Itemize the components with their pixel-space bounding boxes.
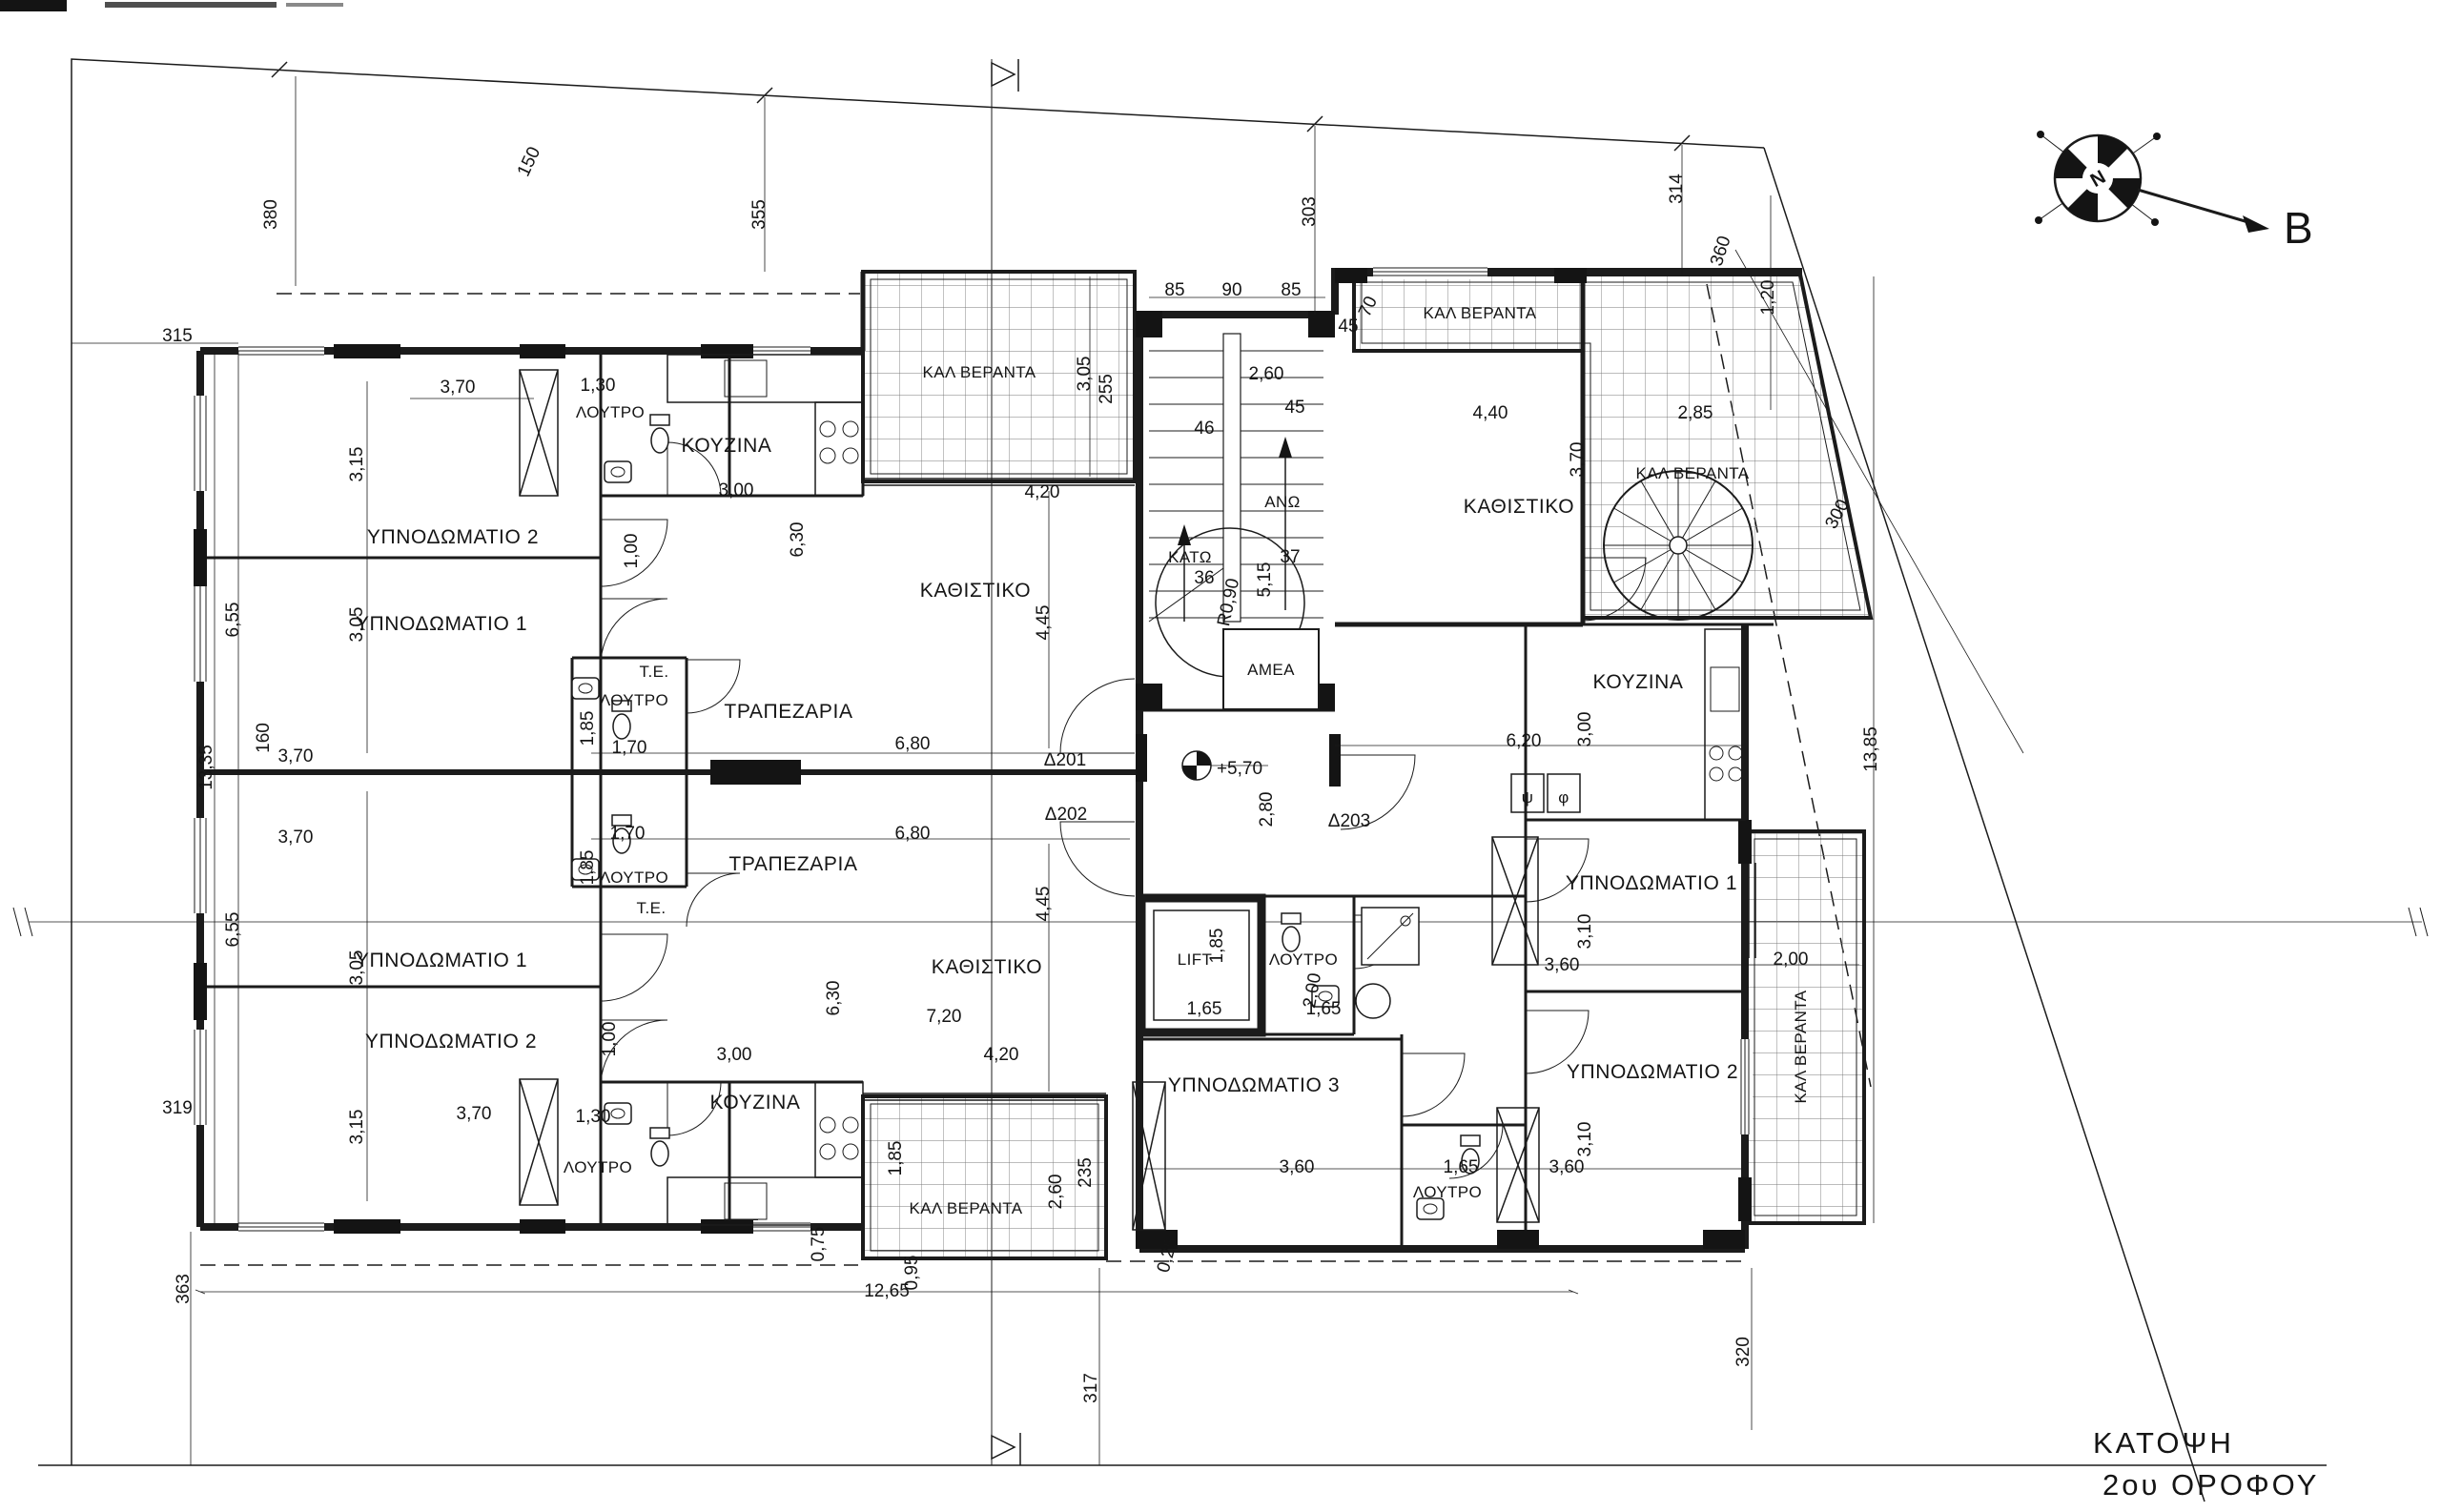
room-label-living-r: ΚΑΘΙΣΤΙΚΟ — [1464, 496, 1574, 518]
room-label-bed2-tl: ΥΠΝΟΔΩΜΑΤΙΟ 2 — [367, 526, 539, 548]
dim-317: 317 — [1081, 1373, 1101, 1403]
dim-1-65-a: 1,65 — [1444, 1157, 1479, 1177]
dim-7-20: 7,20 — [927, 1007, 962, 1027]
dim-6-55-b: 6,55 — [223, 912, 243, 948]
room-label-veranda-right: ΚΑΛ ΒΕΡΑΝΤΑ — [1792, 990, 1810, 1103]
window-bottom-1 — [238, 1220, 324, 1235]
window-top-2 — [753, 344, 810, 358]
dim-2-85: 2,85 — [1678, 403, 1713, 423]
dim-3-05-a: 3,05 — [347, 607, 367, 643]
window-left-4 — [193, 1030, 208, 1125]
dim-3-15-a: 3,15 — [347, 447, 367, 482]
dim-3-00-r: 3,00 — [1575, 712, 1595, 747]
dim-255: 255 — [1097, 374, 1117, 404]
dim-1-85-b: 1,85 — [578, 850, 598, 886]
floorplan-drawing: N B 380 150 355 303 314 360 1,20 315 6,5… — [0, 0, 2441, 1512]
dim-3-00-b: 3,00 — [717, 1045, 752, 1065]
window-right-1 — [1738, 1039, 1753, 1134]
window-top-1 — [238, 344, 324, 358]
room-label-veranda-bottom: ΚΑΛ ΒΕΡΑΝΤΑ — [909, 1199, 1022, 1217]
room-label-living-bl: ΚΑΘΙΣΤΙΚΟ — [932, 956, 1042, 978]
dim-45-b: 45 — [1284, 398, 1304, 418]
room-label-veranda-tr1: ΚΑΛ ΒΕΡΑΝΤΑ — [1423, 304, 1536, 322]
verandas — [863, 272, 1871, 1258]
room-label-bed2-r: ΥΠΝΟΔΩΜΑΤΙΟ 2 — [1567, 1061, 1738, 1083]
room-label-veranda-top: ΚΑΛ ΒΕΡΑΝΤΑ — [922, 363, 1036, 381]
window-left-1 — [193, 396, 208, 491]
dim-303: 303 — [1300, 196, 1320, 227]
room-label-living-tl: ΚΑΘΙΣΤΙΚΟ — [920, 580, 1031, 602]
dim-45-a: 45 — [1338, 317, 1358, 337]
dim-1-85-c: 1,85 — [1207, 929, 1227, 964]
dim-355: 355 — [749, 199, 769, 230]
dim-3-60-b: 3,60 — [1549, 1157, 1585, 1177]
dim-3-70-d: 3,70 — [457, 1104, 492, 1124]
dim-1-70-a: 1,70 — [612, 738, 647, 758]
dim-315: 315 — [162, 326, 193, 346]
dim-1-00-b: 1,00 — [600, 1022, 620, 1057]
room-label-dining-up: ΤΡΑΠΕΖΑΡΙΑ — [724, 701, 852, 723]
door-label-d202: Δ202 — [1045, 805, 1087, 825]
dim-6-80-b: 6,80 — [895, 824, 931, 844]
dim-1-30-a: 1,30 — [581, 376, 616, 396]
room-label-bed1-tl: ΥΠΝΟΔΩΜΑΤΙΟ 1 — [356, 613, 527, 635]
dim-3-10-a: 3,10 — [1575, 914, 1595, 950]
window-bottom-2 — [753, 1220, 810, 1235]
room-label-te-lower: Τ.Ε. — [637, 899, 667, 917]
dim-1-30-b: 1,30 — [576, 1107, 611, 1127]
dim-6-20: 6,20 — [1507, 731, 1542, 751]
room-label-bed3: ΥΠΝΟΔΩΜΑΤΙΟ 3 — [1168, 1074, 1340, 1096]
door-label-d203: Δ203 — [1328, 811, 1370, 831]
dim-85-a: 85 — [1164, 280, 1184, 300]
dim-2-00-a: 2,00 — [1774, 950, 1809, 970]
room-label-bed1-bl: ΥΠΝΟΔΩΜΑΤΙΟ 1 — [356, 950, 527, 971]
dim-46: 46 — [1194, 419, 1214, 439]
room-label-veranda-tr2: ΚΑΛ ΒΕΡΑΝΤΑ — [1635, 464, 1749, 482]
staircase — [1149, 334, 1323, 709]
dim-4-45-b: 4,45 — [1034, 887, 1054, 922]
window-left-2 — [193, 586, 208, 682]
dim-85-b: 85 — [1281, 280, 1301, 300]
room-label-bath-r: ΛΟΥΤΡΟ — [1269, 950, 1338, 969]
dim-6-55-a: 6,55 — [223, 603, 243, 638]
dim-6-30-a: 6,30 — [788, 522, 808, 558]
dim-1-65-b: 1,65 — [1187, 999, 1222, 1019]
room-label-dining-low: ΤΡΑΠΕΖΑΡΙΑ — [728, 853, 857, 875]
dim-37: 37 — [1280, 547, 1300, 567]
dim-360: 360 — [1707, 234, 1735, 269]
dim-314: 314 — [1667, 174, 1687, 204]
dim-36: 36 — [1194, 568, 1214, 588]
room-label-bed2-bl: ΥΠΝΟΔΩΜΑΤΙΟ 2 — [365, 1031, 537, 1052]
room-label-bath-tl: ΛΟΥΤΡΟ — [576, 403, 645, 421]
label-amea: ΑΜΕΑ — [1247, 661, 1295, 679]
north-compass: N B — [2035, 131, 2313, 253]
level-label: +5,70 — [1217, 759, 1262, 779]
dim-2-80: 2,80 — [1257, 792, 1277, 828]
north-direction-label: B — [2284, 203, 2313, 253]
dim-3-05-b: 3,05 — [347, 950, 367, 986]
dim-2-60-b: 2,60 — [1046, 1175, 1066, 1210]
dim-3-15-b: 3,15 — [347, 1110, 367, 1145]
drawing-title-line2: 2ου ΟΡΟΦΟΥ — [2103, 1468, 2319, 1502]
dim-1-70-b: 1,70 — [610, 824, 646, 844]
dim-320: 320 — [1733, 1337, 1754, 1367]
dim-319: 319 — [162, 1098, 193, 1118]
room-label-bath-bl: ΛΟΥΤΡΟ — [564, 1158, 632, 1176]
dim-4-20-b: 4,20 — [984, 1045, 1019, 1065]
room-label-kitchen-bl: ΚΟΥΖΙΝΑ — [709, 1092, 800, 1114]
appliance-phi: φ — [1558, 788, 1569, 807]
room-label-kitchen-r: ΚΟΥΖΙΝΑ — [1592, 671, 1683, 693]
dim-3-00-a: 3,00 — [719, 480, 754, 501]
dim-0-75: 0,75 — [809, 1227, 829, 1262]
dim-3-60-c: 3,60 — [1280, 1157, 1315, 1177]
dim-1-85-d: 1,85 — [886, 1141, 906, 1176]
door-arcs — [601, 442, 1646, 1178]
dim-2-60-a: 2,60 — [1249, 364, 1284, 384]
dim-6-30-b: 6,30 — [824, 981, 844, 1016]
door-label-d201: Δ201 — [1044, 750, 1086, 770]
dim-1-85-a: 1,85 — [578, 711, 598, 746]
room-label-bath-mid-up: ΛΟΥΤΡΟ — [600, 691, 668, 709]
dim-160: 160 — [254, 723, 274, 753]
dim-6-80-a: 6,80 — [895, 734, 931, 754]
dim-1-00-a: 1,00 — [622, 534, 642, 569]
scan-artifacts — [0, 0, 343, 11]
drawing-title-line1: ΚΑΤΟΨΗ — [2093, 1426, 2234, 1460]
dim-13-35: 13,35 — [196, 745, 216, 790]
dim-4-45-a: 4,45 — [1034, 605, 1054, 641]
dim-5-15: 5,15 — [1255, 562, 1275, 598]
dim-3-70-r: 3,70 — [1568, 442, 1588, 478]
dim-150: 150 — [514, 144, 544, 180]
room-label-bed1-r: ΥΠΝΟΔΩΜΑΤΙΟ 1 — [1566, 872, 1737, 894]
title-block: ΚΑΤΟΨΗ 2ου ΟΡΟΦΟΥ — [2093, 1426, 2319, 1502]
dim-4-20-a: 4,20 — [1025, 482, 1060, 502]
dim-380: 380 — [261, 199, 281, 230]
dim-3-70-a: 3,70 — [441, 378, 476, 398]
stair-label-up: ΑΝΩ — [1264, 493, 1301, 511]
dim-3-10-b: 3,10 — [1575, 1122, 1595, 1157]
room-label-bath-mid-low: ΛΟΥΤΡΟ — [600, 868, 668, 887]
dim-3-70-b: 3,70 — [278, 746, 314, 766]
window-left-3 — [193, 818, 208, 913]
stair-label-down: ΚΑΤΩ — [1168, 548, 1212, 566]
dim-363: 363 — [174, 1274, 194, 1304]
plot-boundary — [38, 59, 2327, 1502]
room-label-kitchen-tl: ΚΟΥΖΙΝΑ — [681, 435, 771, 457]
dim-1-20: 1,20 — [1758, 280, 1778, 316]
room-label-te-upper: Τ.Ε. — [640, 663, 669, 681]
window-right-top — [1373, 265, 1487, 279]
dim-3-60-a: 3,60 — [1545, 955, 1580, 975]
floorplan-sheet: N B 380 150 355 303 314 360 1,20 315 6,5… — [0, 0, 2441, 1512]
dim-13-85: 13,85 — [1861, 726, 1881, 772]
room-label-bath-br: ΛΟΥΤΡΟ — [1413, 1183, 1482, 1201]
dim-3-70-c: 3,70 — [278, 828, 314, 848]
dim-235: 235 — [1076, 1157, 1096, 1188]
dim-4-40: 4,40 — [1473, 403, 1508, 423]
dim-90: 90 — [1221, 280, 1241, 300]
dim-1-65-c: 1,65 — [1306, 999, 1342, 1019]
dim-12-65: 12,65 — [864, 1281, 910, 1301]
appliance-psi: ψ — [1522, 788, 1534, 807]
dim-3-05-c: 3,05 — [1075, 357, 1095, 392]
